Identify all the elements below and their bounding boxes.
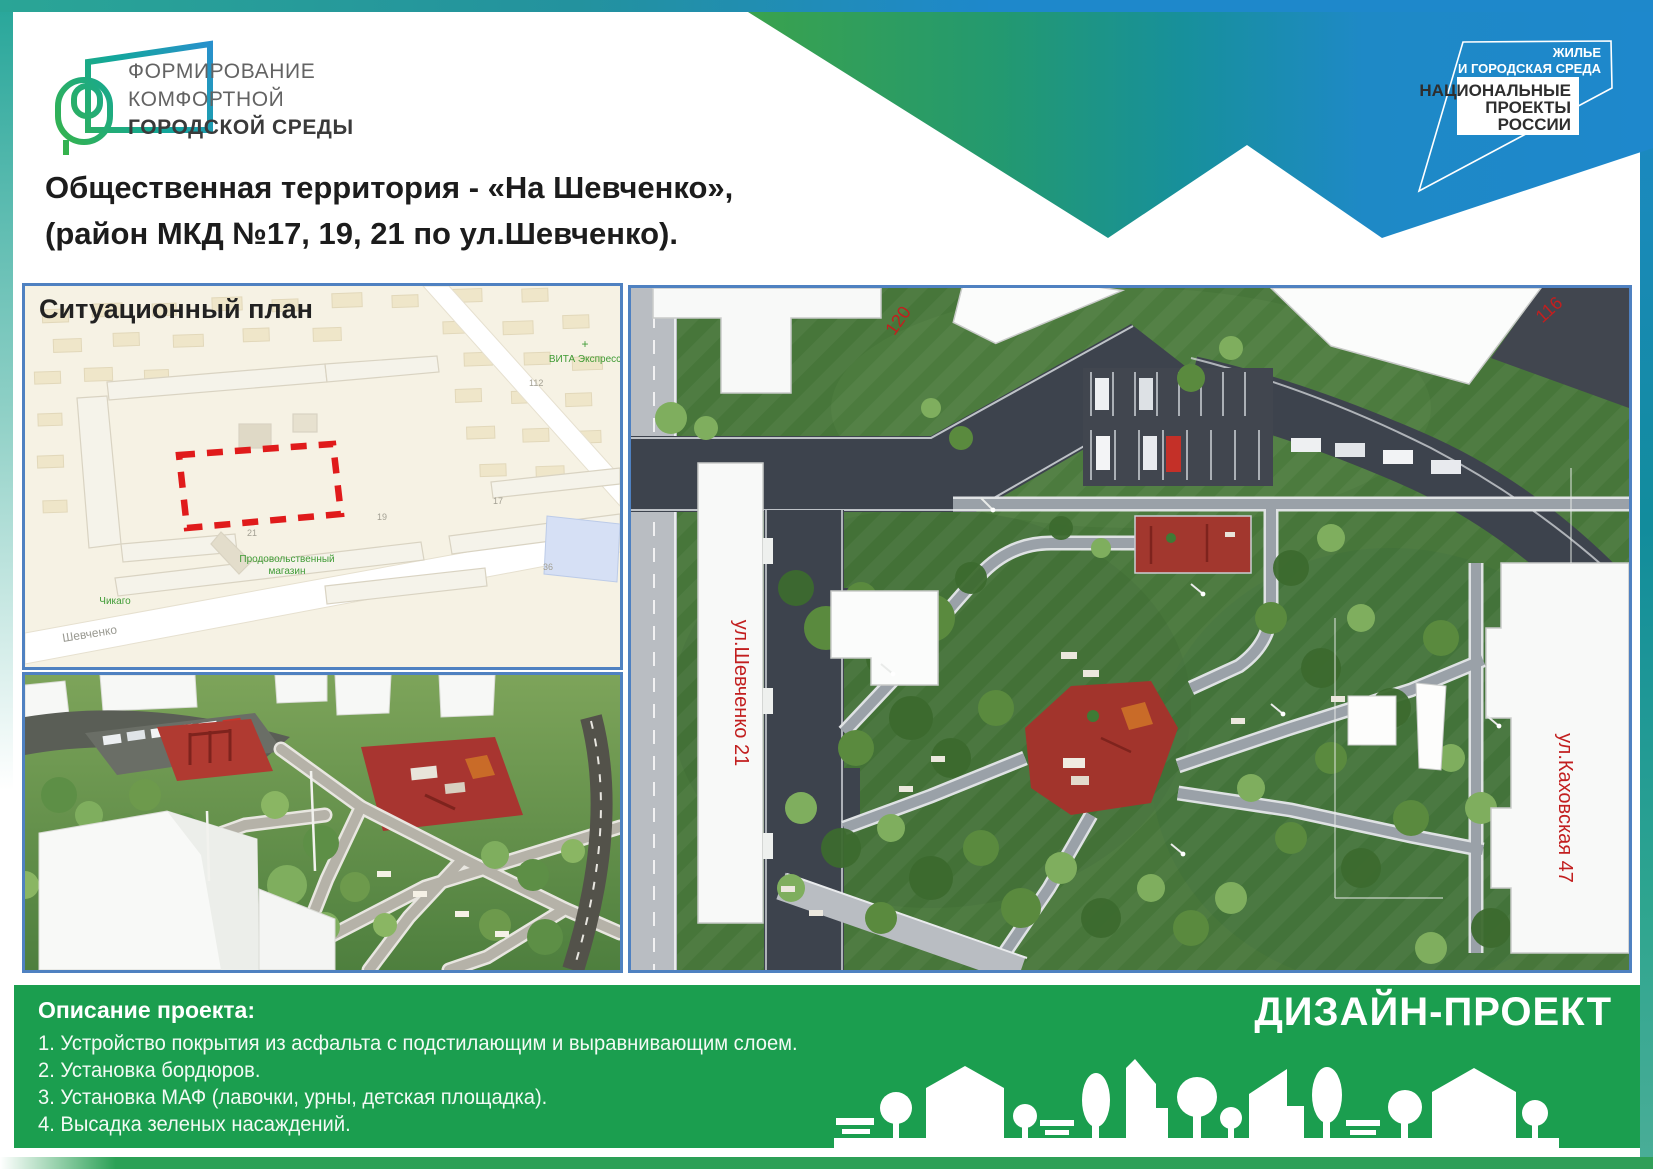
aerial-label-kakhovskaya47: ул.Каховская 47: [1554, 733, 1576, 883]
design-project-label: ДИЗАЙН-ПРОЕКТ: [1254, 990, 1612, 1035]
footer-item-2: 2. Установка бордюров.: [38, 1057, 798, 1084]
program-name: ФОРМИРОВАНИЕ КОМФОРТНОЙ ГОРОДСКОЙ СРЕДЫ: [128, 58, 354, 142]
map-poi-grocery-line2: магазин: [268, 566, 305, 577]
city-skyline-graphic: [834, 1046, 1559, 1148]
map-poi-chicago: Чикаго: [99, 596, 131, 607]
map-number-19: 19: [377, 512, 387, 522]
program-name-line1: ФОРМИРОВАНИЕ: [128, 58, 354, 86]
map-title: Ситуационный план: [39, 294, 313, 324]
aerial-label-shevchenko21: ул.Шевченко 21: [730, 620, 752, 766]
map-number-36: 36: [543, 562, 553, 572]
map-poi-grocery-line1: Продовольственный: [239, 554, 334, 565]
situational-plan-map: Ситуационный план Шевченко Продовольстве…: [25, 286, 620, 667]
map-blue-building: [544, 516, 620, 582]
program-name-line3: ГОРОДСКОЙ СРЕДЫ: [128, 114, 354, 142]
page-title-line1: Общественная территория - «На Шевченко»,: [45, 165, 733, 211]
aerial-render-panel: ул.Шевченко 21 120 116 ул.Каховская 47: [628, 285, 1632, 973]
aerial-small-building: [1348, 696, 1396, 745]
footer-item-4: 4. Высадка зеленых насаждений.: [38, 1111, 798, 1138]
badge-line2: И ГОРОДСКАЯ СРЕДА: [1458, 61, 1602, 76]
map-pharmacy-cross-icon: +: [581, 337, 588, 351]
map-number-17: 17: [493, 496, 503, 506]
perspective-render-panel: [22, 672, 623, 973]
situational-plan-panel: Ситуационный план Шевченко Продовольстве…: [22, 283, 623, 670]
aerial-red-car: [1166, 436, 1181, 472]
program-name-line2: КОМФОРТНОЙ: [128, 86, 354, 114]
aerial-sport-court: [1135, 516, 1251, 573]
badge-line1: ЖИЛЬЕ: [1552, 45, 1602, 60]
footer-item-3: 3. Установка МАФ (лавочки, урны, детская…: [38, 1084, 798, 1111]
page-title-line2: (район МКД №17, 19, 21 по ул.Шевченко).: [45, 211, 733, 257]
page-title: Общественная территория - «На Шевченко»,…: [45, 165, 733, 257]
map-poi-vita: ВИТА Экспресс: [549, 354, 620, 365]
poster-page: ЖИЛЬЕ И ГОРОДСКАЯ СРЕДА НАЦИОНАЛЬНЫЕ ПРО…: [0, 0, 1653, 1169]
perspective-render: [25, 675, 620, 970]
badge-line5: РОССИИ: [1498, 115, 1571, 134]
footer-list: 1. Устройство покрытия из асфальта с под…: [38, 1030, 798, 1138]
footer-item-1: 1. Устройство покрытия из асфальта с под…: [38, 1030, 798, 1057]
map-number-112: 112: [529, 378, 543, 388]
project-description-footer: Описание проекта: 1. Устройство покрытия…: [14, 985, 1640, 1148]
map-number-21: 21: [247, 528, 257, 538]
aerial-small-slab: [1416, 683, 1446, 770]
footer-heading: Описание проекта:: [38, 997, 255, 1024]
bottom-border-strip: [0, 1157, 1653, 1169]
aerial-render: ул.Шевченко 21 120 116 ул.Каховская 47: [631, 288, 1629, 970]
